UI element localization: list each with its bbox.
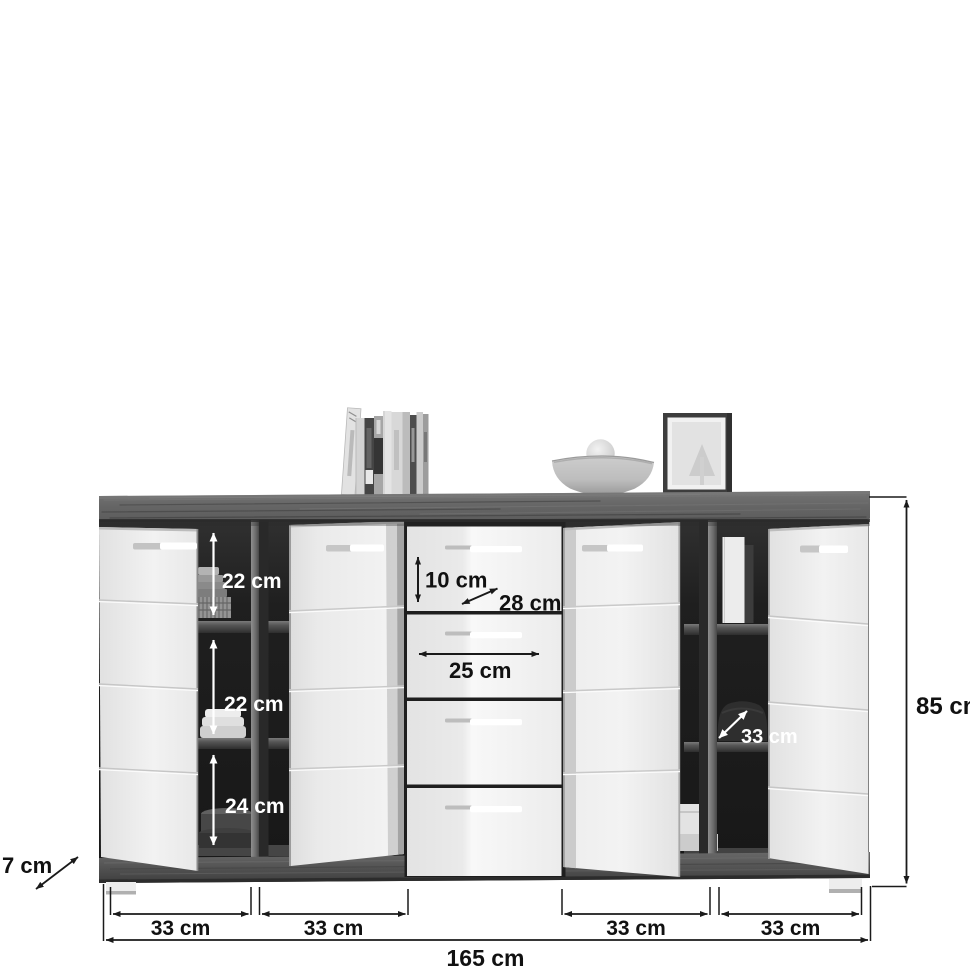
svg-text:165 cm: 165 cm [446, 945, 524, 971]
svg-text:25 cm: 25 cm [449, 658, 511, 683]
svg-text:33 cm: 33 cm [151, 917, 211, 940]
svg-text:22 cm: 22 cm [222, 570, 282, 593]
svg-text:22 cm: 22 cm [224, 693, 284, 716]
svg-text:33 cm: 33 cm [606, 917, 666, 940]
svg-text:28 cm: 28 cm [499, 591, 561, 616]
svg-text:33 cm: 33 cm [304, 917, 364, 940]
svg-text:7 cm: 7 cm [2, 853, 52, 878]
svg-text:33 cm: 33 cm [761, 917, 821, 940]
svg-text:24 cm: 24 cm [225, 795, 285, 818]
svg-text:10 cm: 10 cm [425, 568, 487, 593]
svg-text:85 cm: 85 cm [916, 693, 970, 720]
svg-text:33 cm: 33 cm [741, 726, 798, 748]
